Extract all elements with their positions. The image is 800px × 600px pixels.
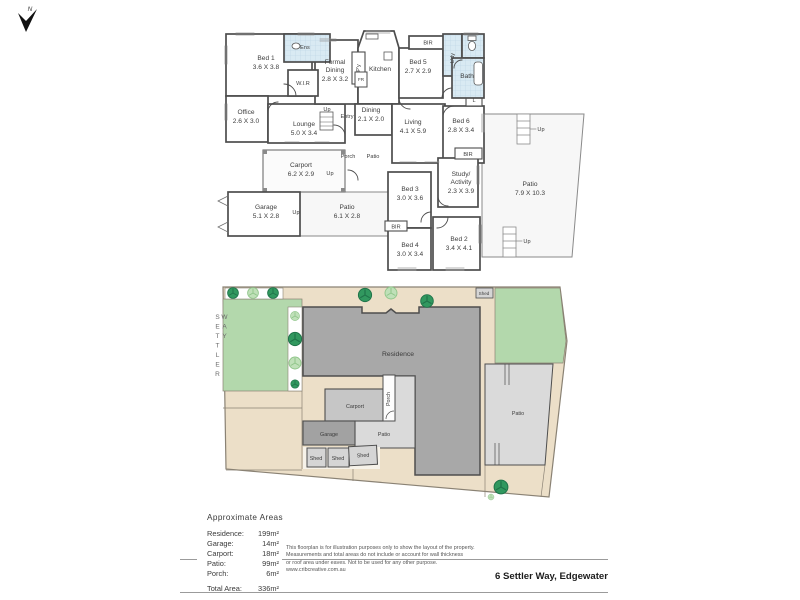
sink-icon (366, 34, 378, 39)
north-compass: N (0, 0, 40, 36)
areas-title: Approximate Areas (207, 513, 283, 522)
bed1-label: Bed 1 (257, 55, 275, 62)
study-l2: Activity (451, 179, 473, 186)
disclaimer-line: This floorplan is for illustration purpo… (286, 545, 498, 552)
patio-big-dims: 7.9 X 10.3 (515, 190, 545, 197)
floor-plan: Bed 1 3.6 X 3.8 Ens W.I.R Office 2.6 X 3… (218, 31, 584, 270)
carport-label: Carport (290, 162, 312, 169)
living-label: Living (404, 119, 422, 126)
patio-right-label: Patio (512, 411, 524, 417)
floorplan-sheet: Bed 1 3.6 X 3.8 Ens W.I.R Office 2.6 X 3… (0, 0, 800, 600)
street-name: SETTLER WAY (214, 314, 228, 416)
disclaimer-line: or roof area under eaves. Not to be used… (286, 560, 498, 567)
lawn-top-right (495, 288, 566, 363)
property-address: 6 Settler Way, Edgewater (492, 571, 608, 582)
area-label: Garage: (207, 539, 234, 549)
area-value: 18m² (262, 549, 279, 559)
carport-site-label: Carport (346, 404, 364, 410)
area-label: Carport: (207, 549, 234, 559)
up-patio-top-label: Up (537, 127, 544, 133)
area-row-porch: Porch: 6m² (207, 569, 279, 579)
bed1-dims: 3.6 X 3.8 (253, 64, 280, 71)
up-garage-label: Up (292, 210, 299, 216)
patio-center-label: Patio (378, 432, 390, 438)
divider-bottom (180, 592, 608, 593)
study-l1: Study/ (452, 171, 471, 178)
carport-dims: 6.2 X 2.9 (288, 171, 315, 178)
living-dims: 4.1 X 5.9 (400, 128, 427, 135)
bed2-label: Bed 2 (450, 236, 468, 243)
residence-label: Residence (382, 351, 414, 358)
toilet-icon (468, 41, 475, 50)
garage-site-label: Garage (320, 432, 338, 438)
dining-label: Dining (362, 107, 381, 114)
area-row-garage: Garage: 14m² (207, 539, 279, 549)
wir-label: W.I.R (296, 81, 310, 87)
bed4-label: Bed 4 (401, 242, 419, 249)
bed3-label: Bed 3 (401, 186, 419, 193)
up-carport-label: Up (326, 171, 333, 177)
area-value: 6m² (266, 569, 279, 579)
area-row-residence: Residence: 199m² (207, 529, 279, 539)
area-value: 199m² (258, 529, 279, 539)
bed2-room (433, 217, 480, 270)
bir-top-label: BIR (423, 41, 432, 47)
bathtub-icon (474, 62, 483, 85)
porch-site-label: Porch (386, 392, 392, 406)
entry-label: Entry (340, 114, 353, 120)
area-label: Patio: (207, 559, 226, 569)
site-plan: Residence Carport Porch Patio Garage She… (223, 287, 567, 500)
lounge-dims: 5.0 X 3.4 (291, 130, 318, 137)
area-label: Residence: (207, 529, 244, 539)
study-dims: 2.3 X 3.9 (448, 188, 475, 195)
shed1-label: Shed (310, 456, 323, 462)
divider-dash (180, 559, 197, 560)
ens-label: Ens (300, 45, 310, 51)
bed5-dims: 2.7 X 2.9 (405, 68, 432, 75)
bed4-dims: 3.0 X 3.4 (397, 251, 424, 258)
garage-label: Garage (255, 204, 277, 211)
area-row-patio: Patio: 99m² (207, 559, 279, 569)
disclaimer-text: This floorplan is for illustration purpo… (286, 545, 498, 574)
bath-label: Bath (460, 73, 474, 80)
laundry-label: L'dy (450, 53, 456, 63)
up-patio-bottom-label: Up (523, 239, 530, 245)
formal-dining-l1: Formal (325, 59, 346, 66)
patio-mid-dims: 6.1 X 2.8 (334, 213, 361, 220)
cistern-icon (468, 36, 476, 41)
disclaimer-line: Measurements and total areas do not incl… (286, 552, 498, 559)
stove-icon (384, 52, 392, 60)
area-value: 14m² (262, 539, 279, 549)
patio-mid-label: Patio (339, 204, 354, 211)
shed-top-label: Shed (479, 291, 490, 296)
area-row-carport: Carport: 18m² (207, 549, 279, 559)
garage-dims: 5.1 X 2.8 (253, 213, 280, 220)
office-dims: 2.6 X 3.0 (233, 118, 260, 125)
bed4-room (388, 228, 431, 270)
bed6-label: Bed 6 (452, 118, 470, 125)
bir-mid-label: BIR (391, 225, 400, 231)
basin-icon (292, 43, 300, 49)
kitchen-label: Kitchen (369, 66, 391, 73)
bed6-dims: 2.8 X 3.4 (448, 127, 475, 134)
patio-small-label: Patio (367, 154, 380, 160)
compass-n-label: N (28, 6, 33, 13)
shed2-label: Shed (332, 456, 345, 462)
bed2-dims: 3.4 X 4.1 (446, 245, 473, 252)
formal-dining-dims: 2.8 X 3.2 (322, 76, 349, 83)
area-label: Porch: (207, 569, 228, 579)
formal-dining-l2: Dining (326, 67, 345, 74)
pantry-label: P'y (356, 64, 362, 72)
plan-graphics: Bed 1 3.6 X 3.8 Ens W.I.R Office 2.6 X 3… (0, 0, 800, 600)
linen-label: L (472, 98, 475, 104)
fridge-label: FR (358, 77, 365, 82)
lounge-label: Lounge (293, 121, 315, 128)
entry-stair-icon (320, 112, 333, 130)
areas-table: Residence: 199m² Garage: 14m² Carport: 1… (207, 529, 279, 594)
office-label: Office (237, 109, 254, 116)
patio-big-label: Patio (522, 181, 537, 188)
bir-right-label: BIR (463, 152, 472, 158)
bed5-label: Bed 5 (409, 59, 427, 66)
dining-dims: 2.1 X 2.0 (358, 116, 385, 123)
bed3-dims: 3.0 X 3.6 (397, 195, 424, 202)
area-value: 99m² (262, 559, 279, 569)
up-entry-label: Up (323, 107, 330, 113)
porch-label: Porch (341, 154, 356, 160)
shed3-label: Shed (357, 453, 370, 460)
disclaimer-line: www.cribcreative.com.au (286, 567, 498, 574)
